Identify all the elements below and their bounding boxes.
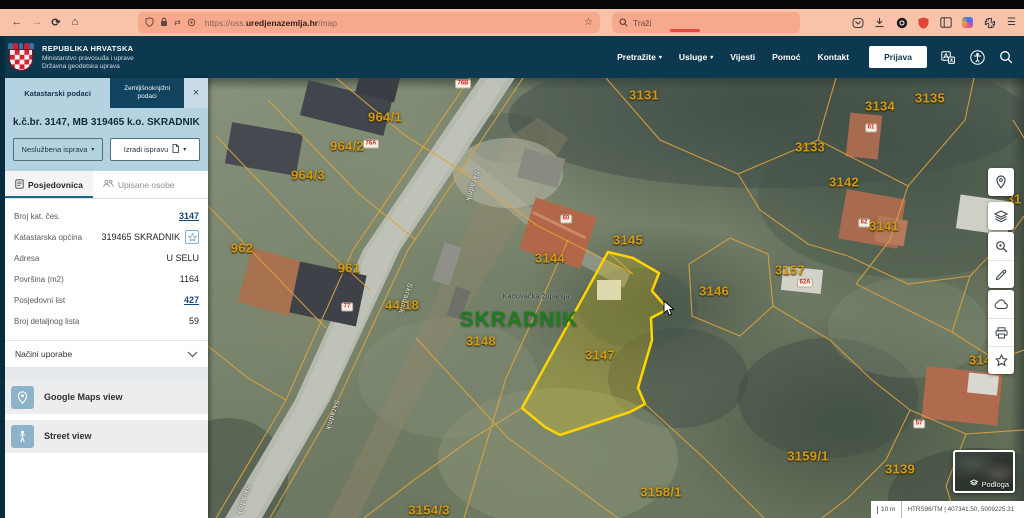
map-tool-group bbox=[988, 232, 1014, 288]
basemap-switcher-button[interactable]: Podloga bbox=[953, 450, 1015, 493]
tab-label: Upisane osobe bbox=[118, 180, 175, 190]
accessibility-icon[interactable] bbox=[969, 49, 985, 65]
field-value: 1164 bbox=[180, 274, 199, 284]
aerial-basemap bbox=[208, 78, 1024, 518]
brand-line: REPUBLIKA HRVATSKA bbox=[42, 44, 134, 53]
parcel-title: k.č.br. 3147, MB 319465 k.o. SKRADNIK bbox=[13, 117, 200, 128]
search-placeholder: Traži bbox=[633, 18, 652, 28]
nav-item-2[interactable]: Vijesti bbox=[730, 52, 755, 62]
translate-icon[interactable] bbox=[940, 49, 956, 65]
extension-color-icon[interactable] bbox=[961, 16, 974, 29]
chevron-down-icon: ▾ bbox=[183, 146, 186, 153]
browser-toolbar: ← → ⟳ ⌂ ⇄ https://oss.uredjenazemlja.hr/… bbox=[0, 0, 1024, 36]
nav-item-1[interactable]: Usluge▾ bbox=[679, 52, 713, 62]
site-brand: REPUBLIKA HRVATSKA Ministarstvo pravosuđ… bbox=[42, 44, 134, 70]
reload-button[interactable]: ⟳ bbox=[47, 12, 65, 32]
lock-icon[interactable] bbox=[160, 14, 168, 32]
map-status-bar: 10 m HTRS96/TM | 407341.50, 5009225.31 bbox=[871, 501, 1024, 518]
ledger-icon bbox=[15, 179, 24, 191]
field-value-link[interactable]: 3147 bbox=[179, 211, 199, 221]
search-icon bbox=[619, 14, 628, 32]
panel-tabs: Katastarski podaci Zemljišnoknjižni poda… bbox=[5, 78, 208, 108]
shield-icon[interactable] bbox=[145, 14, 154, 32]
pegman-icon bbox=[11, 425, 34, 448]
download-icon[interactable] bbox=[873, 16, 886, 29]
expander-label: Načini uporabe bbox=[15, 349, 187, 359]
field-label: Adresa bbox=[14, 254, 166, 263]
field-value: U SELU bbox=[166, 253, 199, 263]
search-bar[interactable]: Traži bbox=[612, 12, 800, 33]
mouse-cursor bbox=[663, 300, 675, 322]
tab-katastarski-podaci[interactable]: Katastarski podaci bbox=[5, 78, 110, 108]
cadastral-map[interactable]: 3131313431353133964/1964/2964/3314231419… bbox=[208, 78, 1024, 518]
street-view-button[interactable]: Street view bbox=[5, 420, 208, 453]
people-icon bbox=[103, 179, 114, 190]
button-label: Neslužbena isprava bbox=[22, 145, 88, 154]
field-label: Broj kat. čes. bbox=[14, 212, 179, 221]
field-value: 319465 SKRADNIK bbox=[101, 232, 180, 242]
favorites-star-button[interactable] bbox=[988, 346, 1014, 374]
chevron-down-icon bbox=[187, 345, 198, 363]
extension-dot-icon[interactable] bbox=[895, 16, 908, 29]
home-button[interactable]: ⌂ bbox=[66, 12, 84, 32]
detail-tabs: Posjedovnica Upisane osobe bbox=[5, 171, 208, 199]
field-list: Broj kat. čes.3147Katastarska općina3194… bbox=[5, 199, 208, 332]
chevron-down-icon: ▾ bbox=[91, 146, 94, 153]
layers-icon bbox=[970, 479, 978, 489]
cloud-download-button[interactable] bbox=[988, 290, 1014, 318]
parcel-header: k.č.br. 3147, MB 319465 k.o. SKRADNIK Ne… bbox=[5, 108, 208, 171]
croatia-coat-of-arms bbox=[8, 43, 34, 72]
maplink-label: Google Maps view bbox=[44, 392, 123, 402]
puzzle-icon[interactable] bbox=[983, 16, 996, 29]
coordinates-readout: HTRS96/TM | 407341.50, 5009225.31 bbox=[902, 506, 1019, 513]
notification-underline bbox=[670, 29, 700, 32]
nav-item-0[interactable]: Pretražite▾ bbox=[617, 52, 662, 62]
field-row-2: AdresaU SELU bbox=[5, 248, 208, 269]
measure-pencil-button[interactable] bbox=[988, 260, 1014, 288]
favorite-star-button[interactable] bbox=[185, 230, 199, 244]
unofficial-document-button[interactable]: Neslužbena isprava ▾ bbox=[13, 138, 103, 161]
tab-label: Posjedovnica bbox=[28, 180, 83, 190]
menu-icon[interactable]: ☰ bbox=[1005, 16, 1018, 29]
chevron-down-icon: ▾ bbox=[710, 54, 713, 61]
identify-parcel-button[interactable] bbox=[988, 232, 1014, 260]
sidebar-panel-icon[interactable] bbox=[939, 16, 952, 29]
field-label: Broj detaljnog lista bbox=[14, 317, 189, 326]
scale-label: 10 m bbox=[881, 506, 895, 513]
button-label: Izradi ispravu bbox=[124, 145, 169, 154]
brand-line: Ministarstvo pravosuđa i uprave bbox=[42, 55, 134, 62]
google-maps-view-button[interactable]: Google Maps view bbox=[5, 381, 208, 414]
main-nav: Pretražite▾Usluge▾VijestiPomoćKontakt bbox=[617, 52, 849, 62]
settlement-label: SKRADNIK bbox=[460, 308, 579, 332]
bookmark-star-icon[interactable]: ☆ bbox=[584, 18, 593, 28]
chevron-down-icon: ▾ bbox=[659, 54, 662, 61]
field-row-1: Katastarska općina319465 SKRADNIK bbox=[5, 227, 208, 248]
nav-item-4[interactable]: Kontakt bbox=[817, 52, 849, 62]
map-toolbar bbox=[988, 168, 1014, 374]
field-label: Katastarska općina bbox=[14, 233, 101, 242]
forward-button[interactable]: → bbox=[28, 12, 46, 32]
site-header: REPUBLIKA HRVATSKA Ministarstvo pravosuđ… bbox=[0, 36, 1024, 78]
close-panel-button[interactable]: × bbox=[184, 78, 208, 108]
document-icon bbox=[172, 144, 179, 155]
address-bar[interactable]: ⇄ https://oss.uredjenazemlja.hr/map ☆ bbox=[138, 12, 600, 33]
nav-item-3[interactable]: Pomoć bbox=[772, 52, 800, 62]
basemap-label: Podloga bbox=[981, 480, 1009, 489]
nav-item-label: Kontakt bbox=[817, 52, 849, 62]
field-row-4: Posjedovni list427 bbox=[5, 290, 208, 311]
field-value: 59 bbox=[189, 316, 199, 326]
locate-button[interactable] bbox=[988, 168, 1014, 196]
map-pin-icon bbox=[11, 386, 34, 409]
parcel-info-panel: Katastarski podaci Zemljišnoknjižni poda… bbox=[5, 78, 208, 518]
create-document-button[interactable]: Izradi ispravu ▾ bbox=[110, 138, 200, 161]
nav-item-label: Vijesti bbox=[730, 52, 755, 62]
url-text: https://oss.uredjenazemlja.hr/map bbox=[205, 18, 578, 28]
field-value-link[interactable]: 427 bbox=[184, 295, 199, 305]
map-tool-group bbox=[988, 290, 1014, 374]
field-row-3: Površina (m2)1164 bbox=[5, 269, 208, 290]
field-row-5: Broj detaljnog lista59 bbox=[5, 311, 208, 332]
field-label: Posjedovni list bbox=[14, 296, 184, 305]
maplink-label: Street view bbox=[44, 431, 92, 441]
app-window: ← → ⟳ ⌂ ⇄ https://oss.uredjenazemlja.hr/… bbox=[0, 0, 1024, 518]
site-search-icon[interactable] bbox=[998, 49, 1014, 65]
brand-line: Državna geodetska uprava bbox=[42, 63, 134, 70]
nav-item-label: Pomoć bbox=[772, 52, 800, 62]
tab-posjedovnica[interactable]: Posjedovnica bbox=[5, 171, 93, 198]
nav-item-label: Pretražite bbox=[617, 52, 656, 62]
field-label: Površina (m2) bbox=[14, 275, 180, 284]
usage-modes-expander[interactable]: Načini uporabe bbox=[5, 341, 208, 368]
scale-indicator: 10 m bbox=[871, 501, 902, 518]
geolocation-icon[interactable] bbox=[187, 14, 196, 32]
pocket-icon[interactable] bbox=[851, 16, 864, 29]
print-button[interactable] bbox=[988, 318, 1014, 346]
login-button[interactable]: Prijava bbox=[869, 46, 927, 68]
field-row-0: Broj kat. čes.3147 bbox=[5, 206, 208, 227]
tab-upisane-osobe[interactable]: Upisane osobe bbox=[93, 171, 185, 198]
adblock-shield-icon[interactable] bbox=[917, 16, 930, 29]
back-button[interactable]: ← bbox=[8, 12, 26, 32]
browser-action-icons: ☰ bbox=[851, 12, 1018, 33]
county-label: Karlovačka županija bbox=[502, 292, 569, 301]
swap-arrows-icon[interactable]: ⇄ bbox=[174, 18, 181, 27]
tab-zemljisnoknjizni-podaci[interactable]: Zemljišnoknjižni podaci bbox=[110, 78, 184, 108]
window-titlebar bbox=[0, 0, 1024, 9]
nav-item-label: Usluge bbox=[679, 52, 707, 62]
layers-button[interactable] bbox=[988, 202, 1014, 230]
panel-gap bbox=[5, 368, 208, 381]
